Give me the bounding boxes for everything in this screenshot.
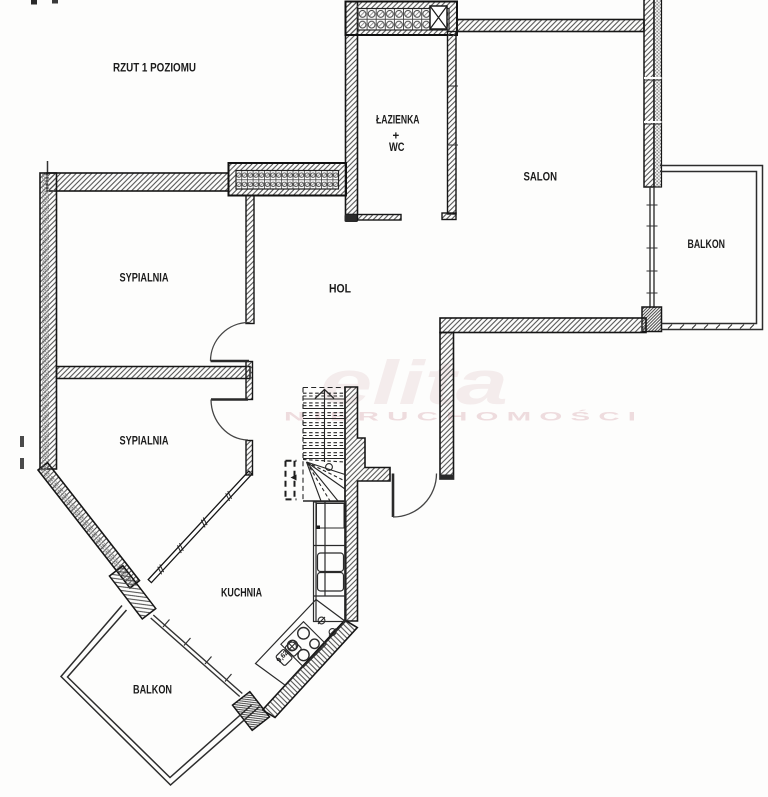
- svg-text:SALON: SALON: [524, 172, 558, 184]
- svg-text:HOL: HOL: [329, 284, 351, 296]
- svg-text:RZUT 1 POZIOMU: RZUT 1 POZIOMU: [113, 61, 196, 75]
- svg-text:ŁAZIENKA: ŁAZIENKA: [376, 115, 420, 127]
- svg-text:WC: WC: [389, 142, 405, 154]
- svg-text:SYPIALNIA: SYPIALNIA: [120, 273, 169, 285]
- svg-text:KUCHNIA: KUCHNIA: [221, 588, 262, 600]
- svg-text:SYPIALNIA: SYPIALNIA: [120, 435, 169, 447]
- svg-text:BALKON: BALKON: [688, 239, 726, 251]
- svg-text:+: +: [393, 131, 400, 143]
- svg-text:BALKON: BALKON: [133, 684, 172, 696]
